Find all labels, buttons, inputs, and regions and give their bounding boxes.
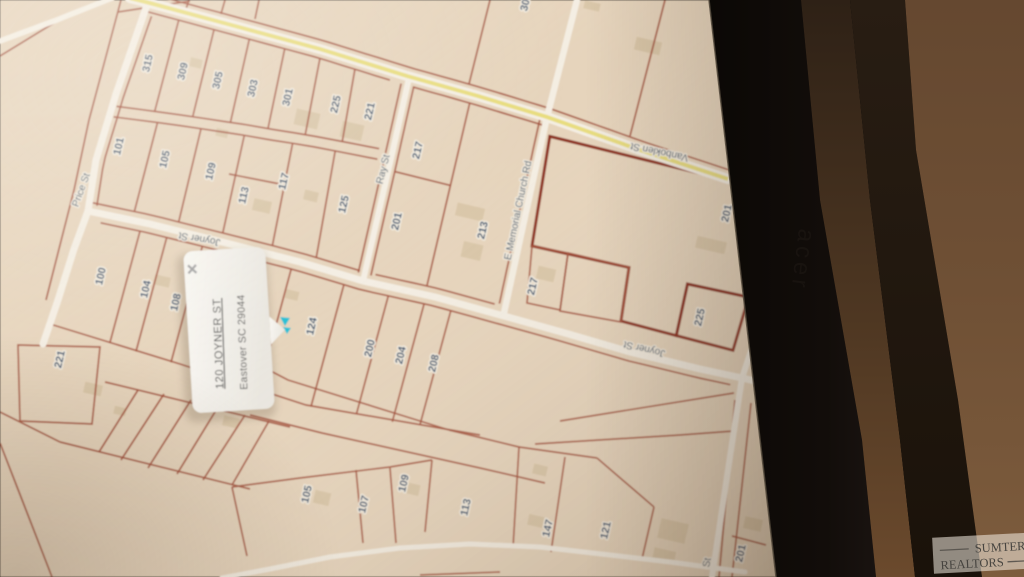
- svg-text:SUMTER: SUMTER: [974, 539, 1024, 556]
